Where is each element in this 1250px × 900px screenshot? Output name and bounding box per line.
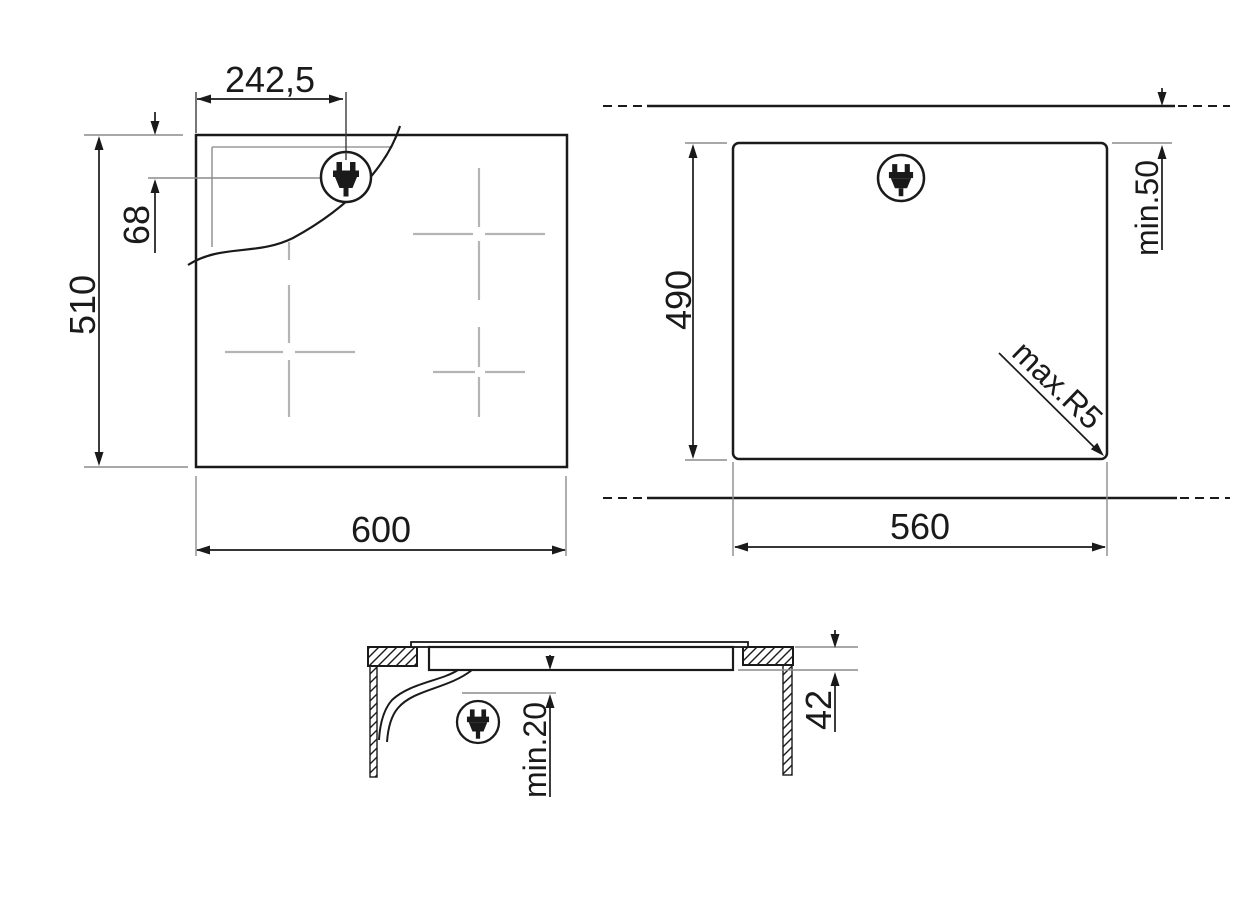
dim-label-plug-offset-y: 68 xyxy=(116,205,157,245)
dim-label-build-in-depth: 42 xyxy=(798,690,839,730)
cutout-view: 490 min.50 max.R5 560 xyxy=(603,88,1230,556)
section-view: min.20 42 xyxy=(368,630,858,798)
dim-label-hob-width: 600 xyxy=(351,509,411,550)
dim-hob-height: 510 xyxy=(62,136,188,467)
dim-label-plug-offset-x: 242,5 xyxy=(225,59,315,100)
cabinet-panel-right xyxy=(783,665,792,775)
hob-outline xyxy=(196,135,567,467)
dim-label-hob-height: 510 xyxy=(62,275,103,335)
cabinet-panel-left xyxy=(370,666,377,777)
hob-top-view: 242,5 68 510 xyxy=(62,59,567,556)
installation-drawing: 242,5 68 510 xyxy=(0,0,1250,900)
dim-cutout-width: 560 xyxy=(733,462,1107,556)
dim-hob-width: 600 xyxy=(196,476,566,556)
dim-cutout-height: 490 xyxy=(658,143,727,460)
power-plug-icon xyxy=(321,152,371,202)
dim-label-cutout-height: 490 xyxy=(658,270,699,330)
power-plug-icon xyxy=(457,701,499,743)
worktop-section-right xyxy=(743,647,793,665)
dim-label-bottom-clearance: min.20 xyxy=(517,702,553,798)
power-plug-icon xyxy=(878,155,924,201)
hob-body-section xyxy=(429,647,733,670)
dim-label-cutout-width: 560 xyxy=(890,506,950,547)
worktop-section-left xyxy=(368,647,417,666)
dim-build-in-depth: 42 xyxy=(738,630,858,732)
dim-label-rear-clearance: min.50 xyxy=(1129,160,1165,256)
dim-rear-clearance: min.50 xyxy=(1112,88,1172,256)
